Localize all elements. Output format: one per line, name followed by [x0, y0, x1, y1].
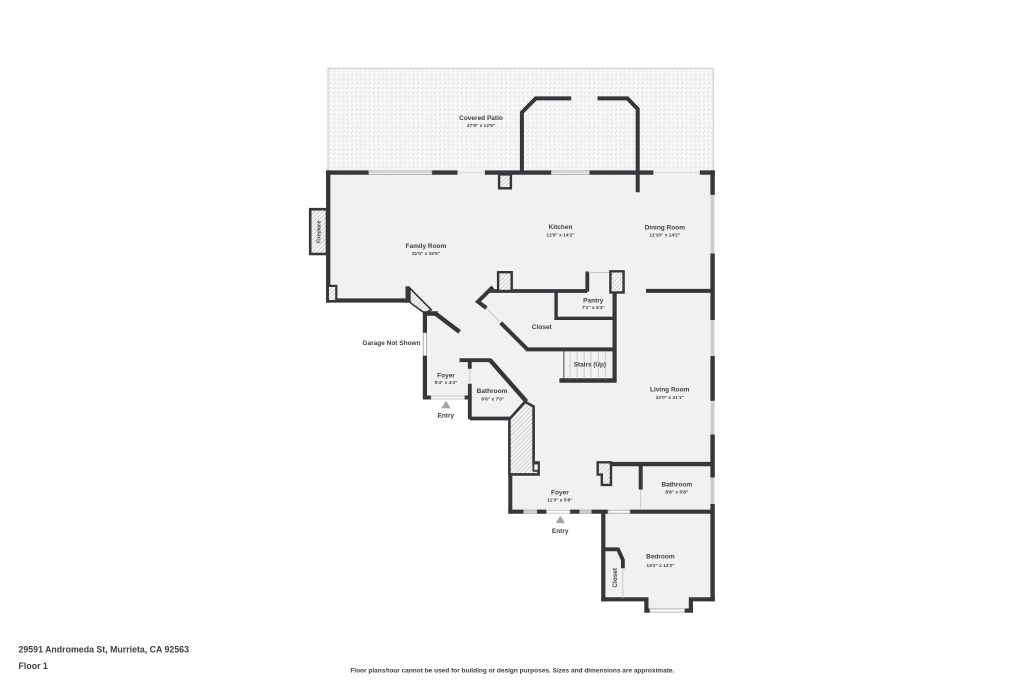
svg-text:6'6" x 7'0": 6'6" x 7'0"	[481, 396, 504, 402]
svg-text:29591 Andromeda St, Murrieta,: 29591 Andromeda St, Murrieta, CA 92563	[19, 644, 190, 654]
svg-text:Covered Patio: Covered Patio	[459, 115, 503, 122]
svg-text:Dining Room: Dining Room	[645, 225, 686, 232]
svg-text:Foyer: Foyer	[437, 373, 455, 380]
svg-text:Stairs (Up): Stairs (Up)	[574, 362, 606, 369]
svg-text:Entry: Entry	[552, 528, 569, 535]
svg-text:11'3" x 5'8": 11'3" x 5'8"	[547, 498, 572, 504]
svg-text:Fireplace: Fireplace	[316, 220, 322, 243]
svg-text:12'8" x 14'2": 12'8" x 14'2"	[546, 232, 574, 238]
svg-text:22'0" x 21'1": 22'0" x 21'1"	[656, 395, 684, 401]
svg-text:8'8" x 5'8": 8'8" x 5'8"	[665, 490, 688, 496]
svg-text:11'10" x 14'2": 11'10" x 14'2"	[650, 233, 681, 239]
svg-text:Bathroom: Bathroom	[661, 481, 692, 488]
svg-text:Entry: Entry	[437, 413, 454, 420]
svg-text:Closet: Closet	[612, 567, 619, 587]
svg-text:Garage Not Shown: Garage Not Shown	[362, 340, 420, 347]
svg-text:Living Room: Living Room	[650, 387, 690, 394]
svg-text:Bathroom: Bathroom	[477, 388, 508, 395]
svg-text:47'9" x 12'9": 47'9" x 12'9"	[467, 123, 495, 129]
svg-text:Family Room: Family Room	[405, 243, 446, 250]
svg-text:Floor 1: Floor 1	[19, 661, 48, 671]
svg-text:7'1" x 5'4": 7'1" x 5'4"	[582, 305, 605, 311]
svg-text:21'0" x 15'5": 21'0" x 15'5"	[412, 251, 440, 257]
svg-text:Foyer: Foyer	[551, 490, 569, 497]
svg-text:Pantry: Pantry	[583, 298, 604, 305]
svg-text:13'2" x 12'2": 13'2" x 12'2"	[646, 563, 674, 569]
svg-text:Closet: Closet	[532, 324, 553, 331]
svg-text:Floor plans/tour cannot be use: Floor plans/tour cannot be used for buil…	[350, 667, 674, 674]
svg-text:5'4" x 4'2": 5'4" x 4'2"	[435, 380, 458, 386]
svg-text:Kitchen: Kitchen	[549, 224, 573, 231]
svg-text:Bedroom: Bedroom	[646, 554, 675, 561]
